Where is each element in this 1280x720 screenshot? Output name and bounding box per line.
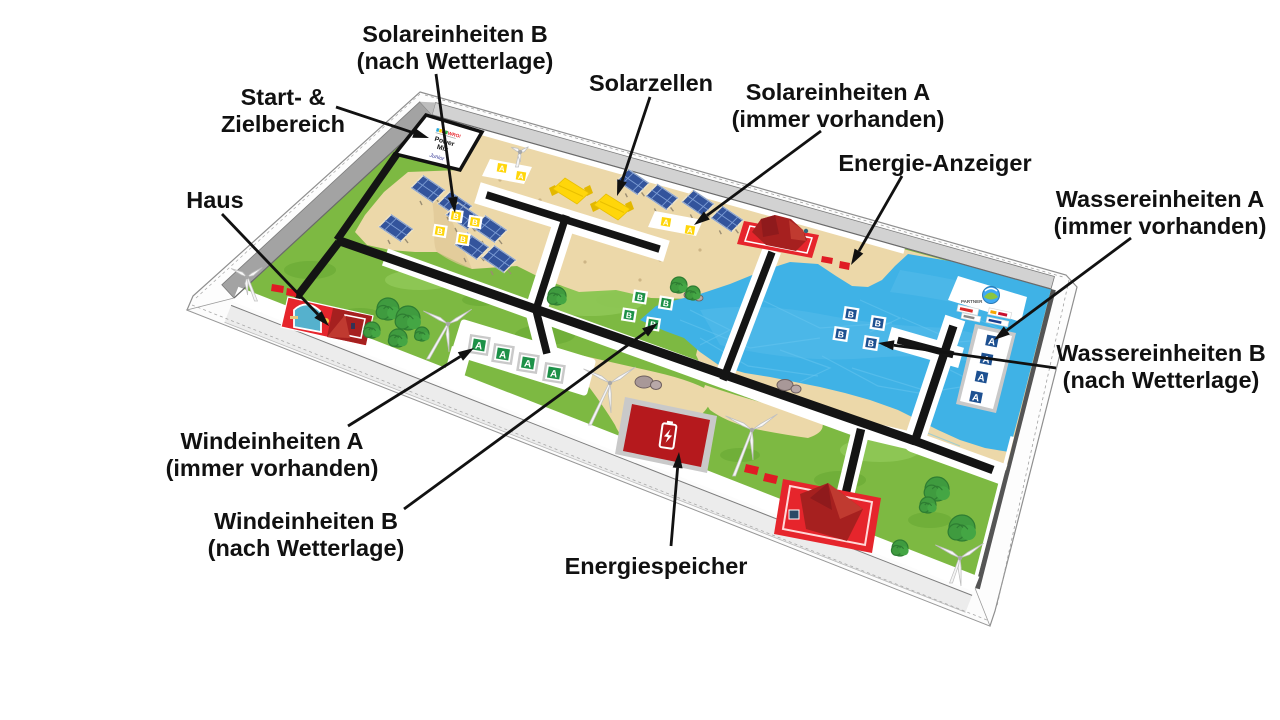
svg-text:Windeinheiten B: Windeinheiten B: [214, 508, 398, 534]
svg-text:PARTNER: PARTNER: [961, 299, 983, 304]
svg-text:Energiespeicher: Energiespeicher: [565, 553, 748, 579]
svg-text:(nach Wetterlage): (nach Wetterlage): [357, 48, 554, 74]
svg-text:(immer vorhanden): (immer vorhanden): [732, 106, 945, 132]
svg-text:Zielbereich: Zielbereich: [221, 111, 345, 137]
svg-text:Wassereinheiten A: Wassereinheiten A: [1056, 186, 1265, 212]
svg-text:(immer vorhanden): (immer vorhanden): [1054, 213, 1267, 239]
svg-text:Solarzellen: Solarzellen: [589, 70, 713, 96]
svg-text:Wassereinheiten B: Wassereinheiten B: [1056, 340, 1265, 366]
svg-text:Solareinheiten B: Solareinheiten B: [362, 21, 547, 47]
svg-text:(immer vorhanden): (immer vorhanden): [166, 455, 379, 481]
svg-text:(nach Wetterlage): (nach Wetterlage): [208, 535, 405, 561]
svg-text:(nach Wetterlage): (nach Wetterlage): [1063, 367, 1260, 393]
svg-text:Energie-Anzeiger: Energie-Anzeiger: [838, 150, 1031, 176]
svg-text:Solareinheiten A: Solareinheiten A: [746, 79, 931, 105]
svg-text:Windeinheiten A: Windeinheiten A: [181, 428, 364, 454]
svg-text:Haus: Haus: [186, 187, 243, 213]
svg-text:Start- &: Start- &: [241, 84, 326, 110]
